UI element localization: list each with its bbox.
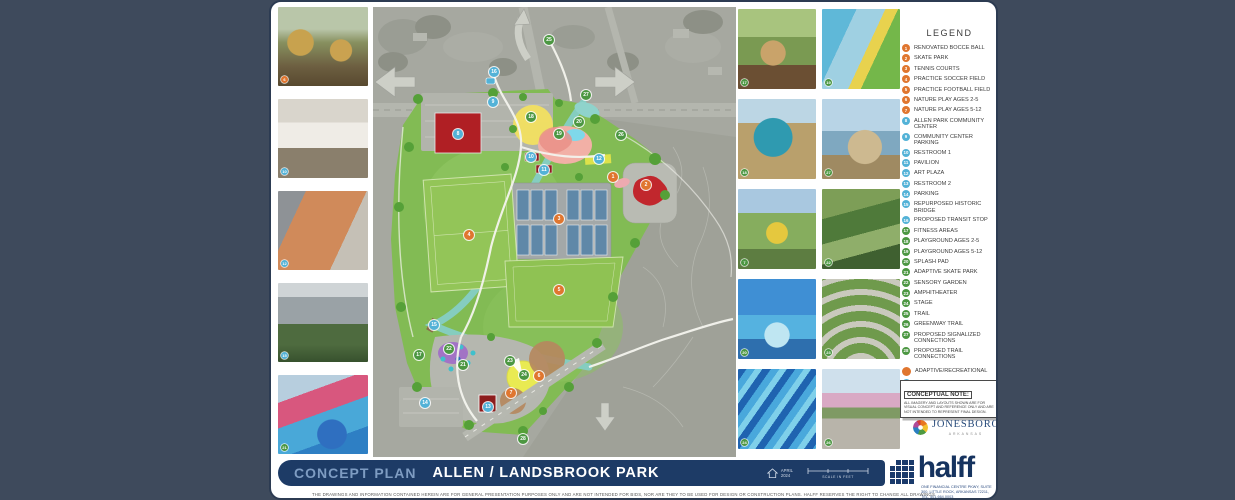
halff-grid-icon (890, 460, 914, 484)
photo-badge: 12 (281, 260, 288, 267)
reference-photo-slide: 19 (822, 9, 900, 89)
reference-photo-plaza: 12 (278, 191, 368, 270)
legend-item-label: RESTROOM 2 (914, 180, 951, 187)
map-marker-4: 4 (464, 230, 474, 240)
reference-photo-bridge: 15 (278, 283, 368, 362)
reference-photo-wood: 6 (278, 7, 368, 86)
map-marker-20: 20 (574, 117, 584, 127)
legend-item: 2SKATE PARK (902, 54, 997, 62)
legend-item-badge: 22 (902, 279, 910, 287)
legend-item-badge: 23 (902, 289, 910, 297)
legend-item-badge: 28 (902, 347, 910, 355)
jonesboro-name: JONESBORO (932, 420, 998, 431)
legend-item: 6NATURE PLAY AGES 2-5 (902, 96, 997, 104)
legend-item-badge: 10 (902, 149, 910, 157)
legend-item-label: NATURE PLAY AGES 2-5 (914, 96, 978, 103)
poster-background: 610121521 (0, 0, 1235, 500)
legend-item-badge: 25 (902, 310, 910, 318)
scale-label: SCALE IN FEET (822, 475, 854, 479)
reference-photo-swing: 7 (738, 189, 816, 269)
legend-item-label: COMMUNITY CENTER PARKING (914, 133, 997, 147)
legend-item: 1RENOVATED BOCCE BALL (902, 44, 997, 52)
legend-item: 24STAGE (902, 299, 997, 307)
map-marker-10: 10 (526, 152, 536, 162)
reference-photo-globe: 18 (738, 99, 816, 179)
map-marker-9: 9 (488, 97, 498, 107)
reference-photo-waves: 24 (738, 369, 816, 449)
legend-item: 9COMMUNITY CENTER PARKING (902, 133, 997, 147)
legend-key-item: ADAPTIVE/RECREATIONAL (902, 367, 997, 376)
map-marker-14: 14 (420, 398, 430, 408)
south-parking (399, 387, 463, 427)
map-marker-6: 6 (534, 371, 544, 381)
scale-bar-icon (807, 467, 869, 474)
legend-item: 14PARKING (902, 190, 997, 198)
legend-item-label: RESTROOM 1 (914, 149, 951, 156)
legend-item-label: PROPOSED SIGNALIZED CONNECTIONS (914, 331, 997, 345)
date-year: 2024 (781, 473, 793, 478)
concept-map: RACE ST (373, 7, 736, 457)
legend-item-badge: 8 (902, 117, 910, 125)
map-marker-28: 28 (518, 434, 528, 444)
legend-item: 28PROPOSED TRAIL CONNECTIONS (902, 347, 997, 361)
legend-item-badge: 9 (902, 133, 910, 141)
legend-item: 17FITNESS AREAS (902, 227, 997, 235)
legend-item-badge: 6 (902, 96, 910, 104)
photo-badge: 18 (741, 169, 748, 176)
legend-item-label: REPURPOSED HISTORIC BRIDGE (914, 200, 997, 214)
legend-item: 5PRACTICE FOOTBALL FIELD (902, 86, 997, 94)
map-marker-18: 18 (526, 112, 536, 122)
photo-col-left: 610121521 (278, 2, 368, 454)
photo-badge: 19 (825, 79, 832, 86)
legend-item-label: SPLASH PAD (914, 258, 949, 265)
legend-item: 26GREENWAY TRAIL (902, 320, 997, 328)
halff-name: halff (918, 454, 974, 483)
legend-item-badge: 27 (902, 331, 910, 339)
legend-item: 23AMPHITHEATER (902, 289, 997, 297)
legend-item: 21ADAPTIVE SKATE PARK (902, 268, 997, 276)
legend-item-badge: 12 (902, 169, 910, 177)
map-marker-19: 19 (554, 129, 564, 139)
photo-badge: 10 (281, 168, 288, 175)
legend-item-label: ADAPTIVE SKATE PARK (914, 268, 978, 275)
legend-item-label: FITNESS AREAS (914, 227, 958, 234)
reference-photo-skate: 21 (278, 375, 368, 454)
legend-item-label: TENNIS COURTS (914, 65, 960, 72)
legend-item: 20SPLASH PAD (902, 258, 997, 266)
title-bar-right: APRIL 2024 SCALE IN FEET (767, 467, 869, 479)
legend-item-label: STAGE (914, 299, 933, 306)
legend-item-badge: 16 (902, 216, 910, 224)
map-marker-13: 13 (483, 402, 493, 412)
legend-item-badge: 13 (902, 180, 910, 188)
legend-item-label: RENOVATED BOCCE BALL (914, 44, 985, 51)
scale-bar: SCALE IN FEET (807, 467, 869, 479)
map-marker-16: 16 (489, 67, 499, 77)
jonesboro-logo: JONESBORO ARKANSAS (913, 420, 998, 436)
photo-badge: 26 (825, 439, 832, 446)
legend-item-badge: 7 (902, 106, 910, 114)
photo-badge: 23 (825, 349, 832, 356)
jonesboro-star-icon (913, 420, 928, 435)
concept-plan-label: CONCEPT PLAN (294, 465, 416, 481)
legend-item: 7NATURE PLAY AGES 5-12 (902, 106, 997, 114)
map-marker-3: 3 (554, 214, 564, 224)
reference-photo-amphi: 23 (822, 279, 900, 359)
legend-item-badge: 17 (902, 227, 910, 235)
legend-item-label: TRAIL (914, 310, 930, 317)
map-marker-23: 23 (505, 356, 515, 366)
legend-item: 12ART PLAZA (902, 169, 997, 177)
legend-item-badge: 3 (902, 65, 910, 73)
legend-item-badge: 20 (902, 258, 910, 266)
legend-title: LEGEND (902, 28, 997, 38)
conceptual-note: CONCEPTUAL NOTE: ALL IMAGERY AND LAYOUTS… (900, 380, 998, 418)
transit-stop-icon (486, 78, 495, 84)
map-marker-11: 11 (539, 165, 549, 175)
reference-photo-spinner: 17 (738, 9, 816, 89)
photo-badge: 15 (281, 352, 288, 359)
photo-badge: 7 (741, 259, 748, 266)
map-marker-12: 12 (594, 154, 604, 164)
map-marker-24: 24 (519, 370, 529, 380)
reference-photo-sandtable: 27 (822, 99, 900, 179)
legend-item-label: PROPOSED TRAIL CONNECTIONS (914, 347, 997, 361)
map-marker-8: 8 (453, 129, 463, 139)
photo-badge: 17 (741, 79, 748, 86)
legend-item: 15REPURPOSED HISTORIC BRIDGE (902, 200, 997, 214)
disclaimer-text: THE DRAWINGS AND INFORMATION CONTAINED H… (311, 492, 936, 500)
legend-item: 4PRACTICE SOCCER FIELD (902, 75, 997, 83)
legend-item: 11PAVILION (902, 159, 997, 167)
map-marker-17: 17 (414, 350, 424, 360)
legend-item-badge: 21 (902, 268, 910, 276)
photo-badge: 21 (281, 444, 288, 451)
photo-badge: 20 (741, 349, 748, 356)
map-marker-1: 1 (608, 172, 618, 182)
title-bar: CONCEPT PLAN ALLEN / LANDSBROOK PARK APR… (278, 460, 885, 486)
legend-item-badge: 26 (902, 320, 910, 328)
photo-badge: 24 (741, 439, 748, 446)
legend-item-badge: 1 (902, 44, 910, 52)
legend-item-label: ART PLAZA (914, 169, 944, 176)
legend-item-badge: 5 (902, 86, 910, 94)
map-marker-25: 25 (544, 35, 554, 45)
map-marker-21: 21 (458, 360, 468, 370)
park-title: ALLEN / LANDSBROOK PARK (432, 465, 659, 481)
map-marker-22: 22 (444, 344, 454, 354)
legend-item-badge: 4 (902, 75, 910, 83)
legend-item-label: GREENWAY TRAIL (914, 320, 963, 327)
legend-item-label: PLAYGROUND AGES 2-5 (914, 237, 979, 244)
plan-sheet: 610121521 (269, 0, 998, 500)
legend-item: 22SENSORY GARDEN (902, 279, 997, 287)
legend-key-badge (902, 367, 911, 376)
reference-photo-blossom: 26 (822, 369, 900, 449)
legend-items: 1RENOVATED BOCCE BALL2SKATE PARK3TENNIS … (902, 44, 997, 360)
legend-item: 13RESTROOM 2 (902, 180, 997, 188)
legend-item-badge: 14 (902, 190, 910, 198)
photo-badge: 6 (281, 76, 288, 83)
legend-item-badge: 2 (902, 54, 910, 62)
legend-item-badge: 18 (902, 237, 910, 245)
map-marker-2: 2 (641, 180, 651, 190)
reference-photo-garden: 22 (822, 189, 900, 269)
legend-item: 18PLAYGROUND AGES 2-5 (902, 237, 997, 245)
legend-item-label: PROPOSED TRANSIT STOP (914, 216, 988, 223)
legend-panel: LEGEND 1RENOVATED BOCCE BALL2SKATE PARK3… (902, 28, 997, 401)
reference-photo-splashpad: 20 (738, 279, 816, 359)
legend-item-badge: 24 (902, 299, 910, 307)
date-block: APRIL 2024 (767, 468, 793, 479)
house-icon (767, 468, 778, 479)
conceptual-note-title: CONCEPTUAL NOTE: (904, 391, 972, 399)
photo-badge: 22 (825, 259, 832, 266)
legend-item-badge: 15 (902, 200, 910, 208)
legend-key-label: ADAPTIVE/RECREATIONAL (915, 367, 987, 374)
map-marker-15: 15 (429, 320, 439, 330)
legend-item: 25TRAIL (902, 310, 997, 318)
map-svg: RACE ST (373, 7, 736, 457)
map-marker-7: 7 (506, 388, 516, 398)
legend-item-label: PARKING (914, 190, 939, 197)
legend-item: 10RESTROOM 1 (902, 149, 997, 157)
map-marker-27: 27 (581, 90, 591, 100)
legend-item: 16PROPOSED TRANSIT STOP (902, 216, 997, 224)
legend-item: 8ALLEN PARK COMMUNITY CENTER (902, 117, 997, 131)
legend-item-label: ALLEN PARK COMMUNITY CENTER (914, 117, 997, 131)
legend-item-label: SKATE PARK (914, 54, 948, 61)
legend-item-label: PRACTICE SOCCER FIELD (914, 75, 985, 82)
map-marker-26: 26 (616, 130, 626, 140)
photo-badge: 27 (825, 169, 832, 176)
legend-item-label: SENSORY GARDEN (914, 279, 967, 286)
legend-item: 19PLAYGROUND AGES 5-12 (902, 248, 997, 256)
legend-item-badge: 11 (902, 159, 910, 167)
practice-football-field (505, 257, 623, 327)
legend-item-label: PRACTICE FOOTBALL FIELD (914, 86, 990, 93)
legend-item: 27PROPOSED SIGNALIZED CONNECTIONS (902, 331, 997, 345)
legend-item-label: AMPHITHEATER (914, 289, 957, 296)
legend-item: 3TENNIS COURTS (902, 65, 997, 73)
conceptual-note-body: ALL IMAGERY AND LAYOUTS SHOWN ARE FOR VI… (904, 401, 995, 414)
reference-photo-restroom: 10 (278, 99, 368, 178)
legend-item-label: PAVILION (914, 159, 939, 166)
photo-grid-right: 1719182772220232426 (738, 9, 900, 449)
map-marker-5: 5 (554, 285, 564, 295)
jonesboro-sub: ARKANSAS (932, 432, 998, 436)
legend-item-badge: 19 (902, 248, 910, 256)
legend-item-label: PLAYGROUND AGES 5-12 (914, 248, 982, 255)
legend-item-label: NATURE PLAY AGES 5-12 (914, 106, 981, 113)
